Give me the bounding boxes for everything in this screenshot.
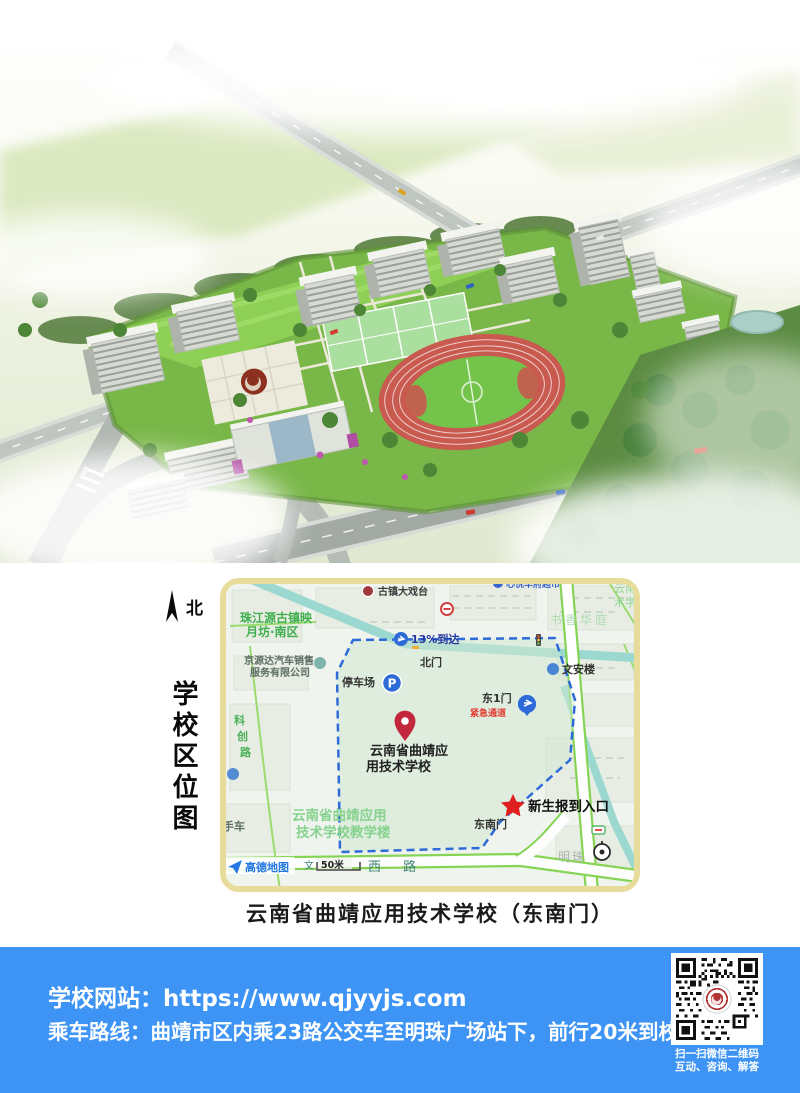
estate-label: 书香华庭 bbox=[550, 612, 610, 627]
svg-text:P: P bbox=[388, 677, 397, 691]
campus-aerial-svg bbox=[0, 0, 800, 563]
scale-label: 50米 bbox=[321, 859, 344, 871]
wechat-qr-code bbox=[671, 953, 763, 1045]
map-caption: 云南省曲靖应用技术学校（东南门） bbox=[180, 898, 680, 928]
wenan-icon bbox=[547, 663, 559, 675]
qr-caption-line1: 扫一扫微信二维码 bbox=[660, 1048, 774, 1061]
teaching-label-2: 技术学校教学楼 bbox=[296, 824, 391, 841]
no-entry-icon bbox=[441, 603, 453, 615]
kechuang-char-3: 路 bbox=[240, 745, 252, 759]
location-map: 古镇大戏台 心悦华府超市 云南 术学 珠江源古镇映 月坊·南区 书香华庭 13%… bbox=[220, 578, 640, 892]
bus-stop-icon bbox=[592, 826, 605, 834]
kechuang-char-2: 创 bbox=[236, 729, 248, 743]
kechuang-char-1: 科 bbox=[234, 713, 245, 727]
report-entrance-label: 新生报到入口 bbox=[528, 798, 609, 815]
residence-label-1: 珠江源古镇映 bbox=[240, 610, 313, 625]
bus-route-line: 乘车路线：曲靖市区内乘23路公交车至明珠广场站下，前行20米到校 bbox=[48, 1015, 679, 1045]
amap-logo: 高德地图 bbox=[225, 857, 295, 874]
school-label-1: 云南省曲靖应 bbox=[370, 743, 448, 759]
qr-caption-line2: 互动、咨询、解答 bbox=[660, 1061, 774, 1074]
brochure-page: { "colors": { "footer_bg": "#3d94f5", "m… bbox=[0, 0, 800, 1093]
qr-caption: 扫一扫微信二维码 互动、咨询、解答 bbox=[660, 1048, 774, 1074]
traffic-light-icon bbox=[536, 634, 541, 646]
dealer-icon bbox=[314, 657, 326, 669]
emergency-label: 紧急通道 bbox=[470, 707, 506, 719]
school-label-2: 用技术学校 bbox=[365, 759, 432, 775]
teaching-label-1: 云南省曲靖应用 bbox=[292, 807, 387, 824]
arrival-icon bbox=[394, 632, 408, 646]
campus-aerial-image bbox=[0, 0, 800, 563]
dealer-label-1: 京源达汽车销售 bbox=[244, 654, 314, 667]
north-arrow-icon bbox=[158, 586, 186, 626]
section-title-vertical: 学校区位图 bbox=[168, 680, 198, 850]
parking-label: 停车场 bbox=[342, 675, 375, 689]
theater-icon bbox=[363, 586, 374, 597]
poi-dot-icon bbox=[227, 768, 239, 780]
website-line: 学校网站：https://www.qjyyjs.com bbox=[48, 979, 467, 1013]
north-gate-label: 北门 bbox=[420, 655, 442, 669]
road-char-label: 文 bbox=[304, 859, 314, 872]
qr-center-logo bbox=[703, 985, 731, 1013]
mingzhu-label: 明珠 bbox=[558, 850, 586, 864]
location-map-svg: 古镇大戏台 心悦华府超市 云南 术学 珠江源古镇映 月坊·南区 书香华庭 13%… bbox=[220, 578, 640, 892]
southeast-gate-label: 东南门 bbox=[474, 817, 507, 831]
east1-gate-label: 东1门 bbox=[482, 691, 512, 705]
wenan-label: 文安楼 bbox=[562, 662, 595, 676]
dealer-label-2: 服务有限公司 bbox=[250, 666, 310, 679]
theater-label: 古镇大戏台 bbox=[378, 585, 428, 598]
parking-icon: P bbox=[383, 674, 402, 693]
north-label: 北 bbox=[186, 594, 203, 619]
qr-pattern bbox=[676, 958, 758, 1040]
north-indicator: 北 bbox=[158, 586, 228, 626]
residence-label-2: 月坊·南区 bbox=[245, 624, 299, 639]
amap-label: 高德地图 bbox=[245, 860, 289, 874]
footer: 学校网站：https://www.qjyyjs.com 乘车路线：曲靖市区内乘2… bbox=[0, 947, 800, 1093]
west-road-label: 西 路 bbox=[368, 859, 425, 875]
corner-label-2: 术学 bbox=[614, 595, 636, 609]
arrival-label: 13%到达 bbox=[411, 632, 459, 646]
